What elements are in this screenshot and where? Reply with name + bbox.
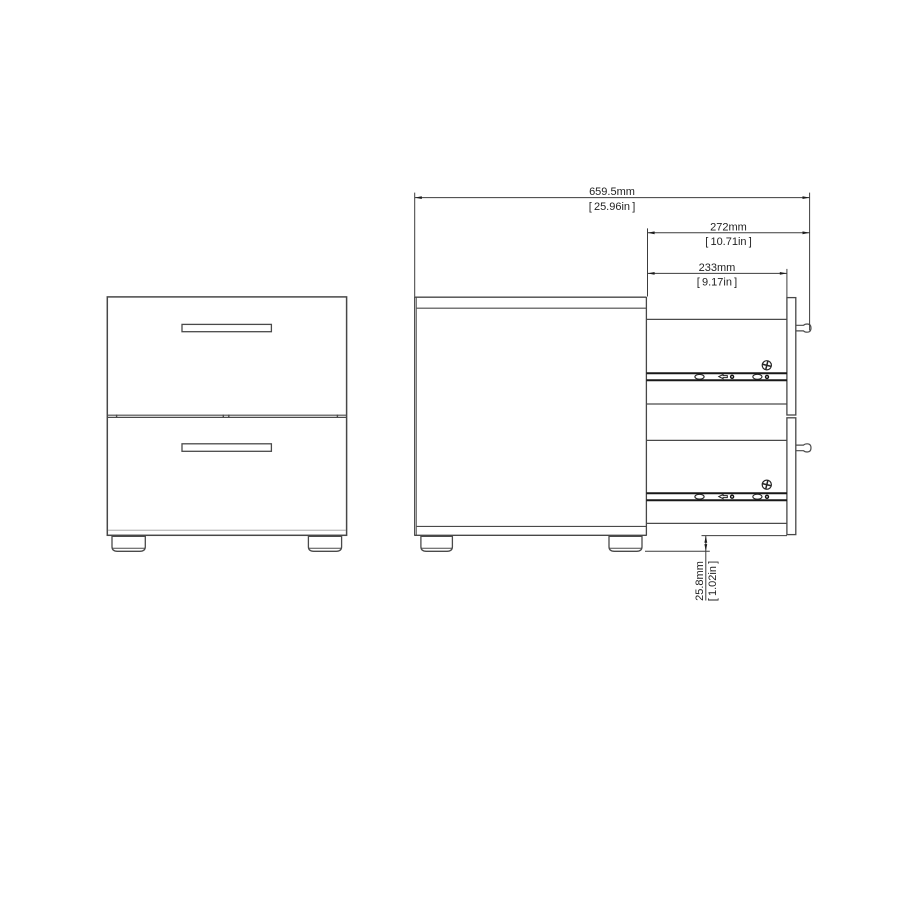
svg-text:[ 1.02in ]: [ 1.02in ]	[707, 561, 719, 602]
svg-text:[ 9.17in ]: [ 9.17in ]	[697, 277, 738, 289]
svg-text:233mm: 233mm	[699, 262, 736, 274]
svg-text:659.5mm: 659.5mm	[589, 186, 635, 198]
svg-text:272mm: 272mm	[710, 221, 747, 233]
svg-text:25.8mm: 25.8mm	[694, 561, 706, 601]
svg-text:[ 25.96in ]: [ 25.96in ]	[589, 201, 636, 213]
svg-text:[ 10.71in ]: [ 10.71in ]	[705, 236, 752, 248]
